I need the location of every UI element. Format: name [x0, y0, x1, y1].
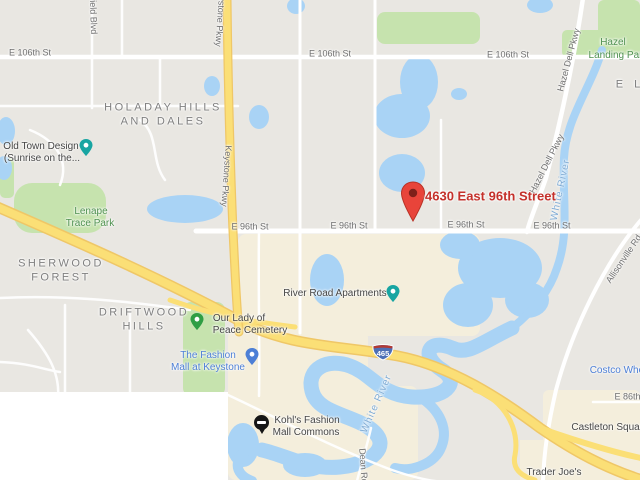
poi-label-castleton: Castleton Square [571, 423, 640, 433]
river-road-poi-pin-icon[interactable] [386, 285, 400, 303]
park-label-lenape-1: Lenape [74, 207, 107, 217]
cemetery-poi-pin-icon[interactable] [190, 313, 204, 331]
neighborhood-label-sherwood-1: SHERWOOD [18, 259, 104, 270]
street-label-e96th-3: E 96th St [447, 221, 484, 230]
street-label-e106th-left: E 106th St [9, 49, 51, 58]
poi-label-river-road: River Road Apartments [283, 289, 386, 299]
neighborhood-label-holaday-1: HOLADAY HILLS [104, 103, 222, 114]
neighborhood-label-driftwood-2: HILLS [122, 322, 165, 333]
neighborhood-label-edge-partial: E L [616, 80, 640, 91]
poi-label-costco: Costco Wholesale [590, 366, 640, 376]
svg-text:465: 465 [377, 349, 390, 358]
street-label-e86th: E 86th St [614, 393, 640, 402]
street-label-dean-rd: Dean Rd [357, 448, 368, 480]
dealer-logo-panel: Tom O'Brien CHRYSLER Jeep DODGE RAM [0, 392, 228, 480]
street-label-e106th-mid: E 106th St [309, 50, 351, 59]
map-screenshot: E 106th St E 106th St E 106th St E 96th … [0, 0, 640, 480]
poi-label-kohls-1: Kohl's Fashion [274, 416, 339, 426]
park-label-lenape-2: Trace Park [66, 219, 115, 229]
poi-label-fashion-mall-1: The Fashion [180, 351, 236, 361]
street-label-e96th-2: E 96th St [330, 222, 367, 231]
poi-label-trader-joes: Trader Joe's [527, 468, 582, 478]
street-label-e106th-right: E 106th St [487, 51, 529, 60]
interstate-465-shield-icon: 465 [371, 343, 395, 361]
kohls-logo-pin-icon[interactable] [254, 415, 269, 430]
poi-label-our-lady-2: Peace Cemetery [213, 326, 287, 336]
poi-label-old-town-2: (Sunrise on the... [4, 154, 80, 164]
street-label-e96th-4: E 96th St [533, 222, 570, 231]
shopping-poi-pin-icon[interactable] [245, 348, 259, 366]
destination-address-label: 4630 East 96th Street [425, 189, 556, 204]
poi-label-fashion-mall-2: Mall at Keystone [171, 363, 245, 373]
poi-label-old-town-1: Old Town Design [3, 142, 78, 152]
street-label-field-blvd: field Blvd [88, 0, 98, 34]
poi-label-kohls-2: Mall Commons [273, 428, 340, 438]
park-label-hazel-landing-2: Landing Park [589, 51, 640, 61]
old-town-poi-pin-icon[interactable] [79, 139, 93, 157]
neighborhood-label-driftwood-1: DRIFTWOOD [99, 308, 189, 319]
destination-pin-icon[interactable] [400, 181, 426, 223]
neighborhood-label-sherwood-2: FOREST [31, 273, 91, 284]
neighborhood-label-holaday-2: AND DALES [121, 117, 206, 128]
street-label-e96th-1: E 96th St [231, 223, 268, 232]
park-label-hazel-landing-1: Hazel [600, 38, 626, 48]
poi-label-our-lady-1: Our Lady of [213, 314, 265, 324]
